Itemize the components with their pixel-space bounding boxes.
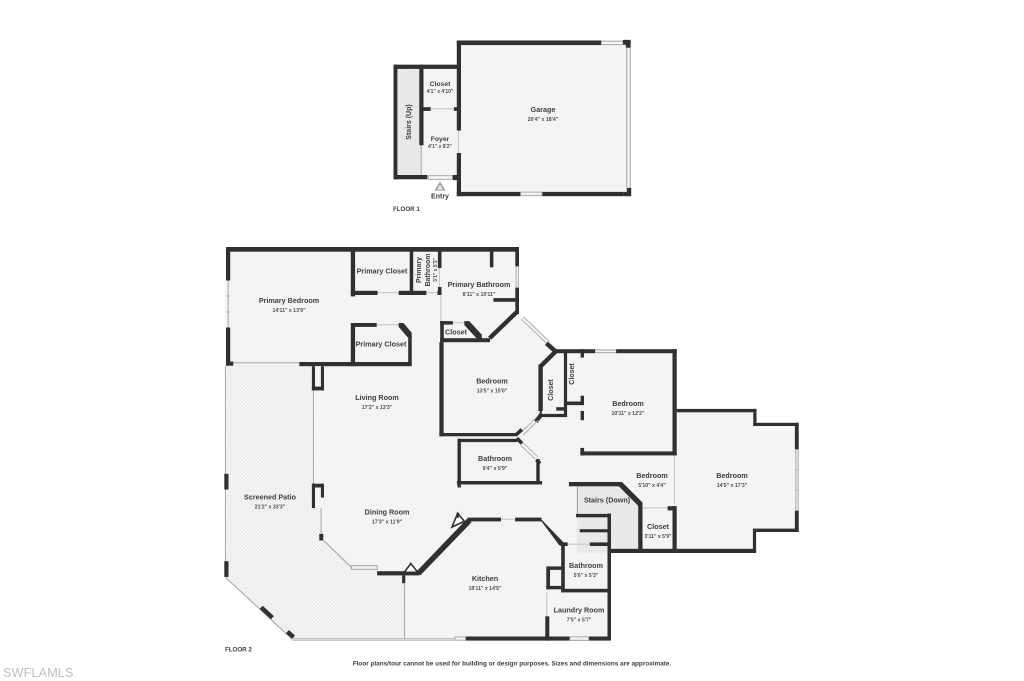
svg-text:Dining Room: Dining Room [365,508,410,517]
svg-text:Bathroom: Bathroom [478,454,512,463]
svg-text:5'6" x 5'3": 5'6" x 5'3" [574,573,599,579]
svg-text:18'11" x 14'5": 18'11" x 14'5" [468,586,502,592]
svg-text:Bedroom: Bedroom [636,471,668,480]
svg-text:Bathroom: Bathroom [425,253,432,286]
svg-text:Stairs (Down): Stairs (Down) [584,496,631,505]
svg-text:7'5" x 5'7": 7'5" x 5'7" [567,618,592,624]
svg-text:9'4" x 5'9": 9'4" x 5'9" [483,466,508,472]
svg-text:Closet: Closet [548,379,555,401]
svg-text:Bedroom: Bedroom [612,399,644,408]
svg-text:Primary Closet: Primary Closet [356,340,407,349]
svg-text:Closet: Closet [647,522,670,531]
svg-text:Bathroom: Bathroom [569,561,603,570]
svg-text:Bedroom: Bedroom [716,471,748,480]
svg-text:13'5" x 15'0": 13'5" x 15'0" [477,389,508,395]
svg-text:Closet: Closet [430,81,452,88]
svg-text:5'10" x 4'4": 5'10" x 4'4" [638,483,666,489]
svg-text:Stairs (Up): Stairs (Up) [406,104,413,139]
svg-text:Bedroom: Bedroom [476,377,508,386]
svg-text:FLOOR 1: FLOOR 1 [393,206,420,213]
svg-text:Primary Bedroom: Primary Bedroom [259,296,319,305]
svg-text:3'1" x 5'3": 3'1" x 5'3" [433,257,439,281]
svg-text:FLOOR 2: FLOOR 2 [225,647,252,654]
svg-text:10'11" x 12'2": 10'11" x 12'2" [611,411,645,417]
svg-text:3'11" x 5'9": 3'11" x 5'9" [644,534,672,540]
svg-text:Closet: Closet [569,363,576,385]
svg-text:17'3" x 11'9": 17'3" x 11'9" [372,520,403,526]
svg-text:Closet: Closet [445,328,468,337]
svg-text:Floor plans/tour cannot be use: Floor plans/tour cannot be used for buil… [353,661,672,668]
svg-text:14'11" x 13'9": 14'11" x 13'9" [272,308,306,314]
svg-text:SWFLAMLS: SWFLAMLS [3,665,73,680]
svg-text:Garage: Garage [531,105,556,114]
svg-text:Foyer: Foyer [431,136,450,143]
svg-text:20'4" x 18'4": 20'4" x 18'4" [528,117,559,123]
svg-text:Primary Closet: Primary Closet [357,267,408,276]
svg-text:Living Room: Living Room [355,393,399,402]
svg-text:8'11" x 10'11": 8'11" x 10'11" [463,292,496,298]
svg-text:Laundry Room: Laundry Room [554,606,605,615]
svg-text:4'1" x 4'10": 4'1" x 4'10" [427,89,454,95]
svg-text:Screened Patio: Screened Patio [244,493,297,502]
svg-text:21'2" x 33'3": 21'2" x 33'3" [255,505,286,511]
svg-text:Kitchen: Kitchen [472,574,498,583]
svg-text:14'5" x 17'3": 14'5" x 17'3" [717,483,748,489]
svg-text:Entry: Entry [431,194,449,201]
svg-text:17'2" x 13'3": 17'2" x 13'3" [362,405,393,411]
svg-text:4'1" x 8'2": 4'1" x 8'2" [428,144,452,150]
svg-text:Primary Bathroom: Primary Bathroom [448,280,511,289]
svg-text:Primary: Primary [416,257,423,283]
